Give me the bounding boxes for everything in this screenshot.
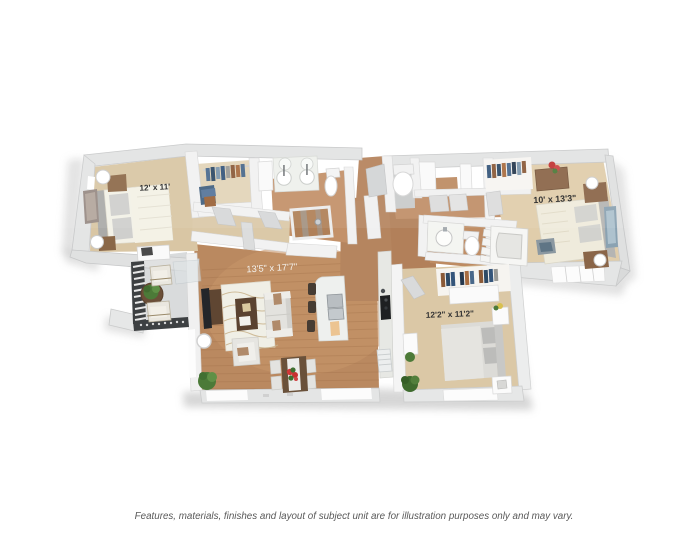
svg-text:12'2" x 11'2": 12'2" x 11'2" [426,308,475,320]
svg-text:12' x 11': 12' x 11' [139,182,170,193]
